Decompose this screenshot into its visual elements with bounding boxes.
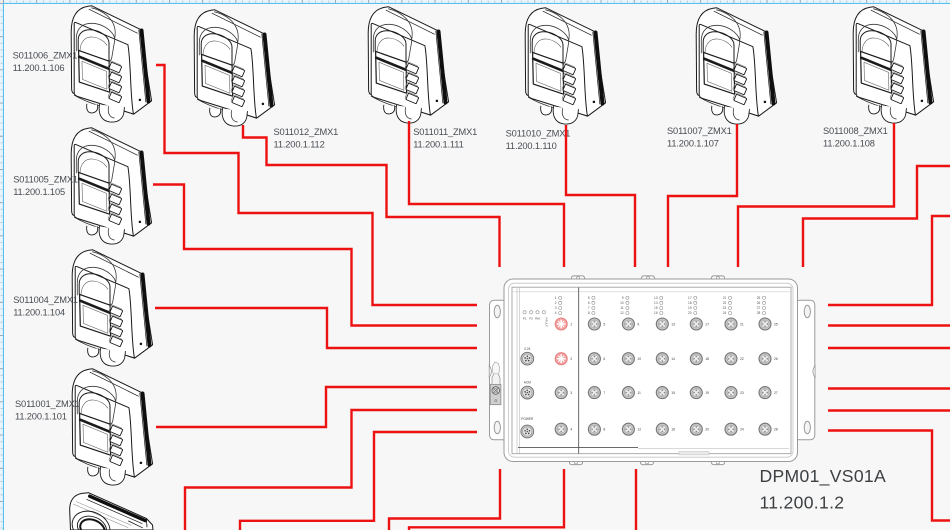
svg-text:13: 13 [654, 296, 658, 300]
svg-text:11.200.1.108: 11.200.1.108 [823, 138, 875, 148]
svg-text:RM: RM [535, 316, 540, 320]
svg-text:POWER: POWER [521, 417, 534, 421]
svg-text:11.200.1.107: 11.200.1.107 [667, 138, 719, 148]
svg-text:P1: P1 [523, 316, 527, 320]
svg-text:14: 14 [671, 357, 675, 361]
svg-text:16: 16 [654, 311, 658, 315]
svg-text:24: 24 [740, 428, 744, 432]
svg-text:4: 4 [555, 311, 557, 315]
svg-text:21: 21 [740, 322, 744, 326]
svg-text:9: 9 [622, 296, 624, 300]
svg-text:1: 1 [555, 296, 557, 300]
svg-text:22: 22 [740, 357, 744, 361]
svg-text:15: 15 [671, 391, 675, 395]
svg-text:24: 24 [723, 311, 727, 315]
svg-text:9: 9 [637, 322, 639, 326]
svg-text:19: 19 [705, 391, 709, 395]
svg-text:20: 20 [705, 428, 709, 432]
svg-text:S011010_ZMX1: S011010_ZMX1 [506, 129, 571, 139]
svg-text:11.200.1.110: 11.200.1.110 [506, 141, 557, 151]
svg-text:11.200.1.101: 11.200.1.101 [15, 411, 67, 421]
svg-text:25: 25 [757, 296, 761, 300]
svg-text:18: 18 [688, 301, 692, 305]
svg-text:7: 7 [588, 306, 590, 310]
svg-text:S011012_ZMX1: S011012_ZMX1 [274, 127, 339, 137]
svg-text:1: 1 [570, 322, 572, 326]
svg-text:10: 10 [620, 301, 624, 305]
svg-text:P2: P2 [529, 316, 533, 320]
svg-text:11.200.1.2: 11.200.1.2 [760, 493, 845, 513]
svg-text:11: 11 [637, 391, 641, 395]
svg-text:20: 20 [688, 311, 692, 315]
svg-text:S011001_ZMX1: S011001_ZMX1 [15, 399, 80, 409]
svg-text:19: 19 [688, 306, 692, 310]
svg-text:8: 8 [603, 428, 605, 432]
svg-text:25: 25 [774, 322, 778, 326]
svg-text:S011006_ZMX1: S011006_ZMX1 [13, 50, 78, 60]
svg-text:17: 17 [705, 322, 709, 326]
svg-text:4: 4 [570, 428, 572, 432]
svg-text:3: 3 [555, 306, 557, 310]
svg-text:0.24: 0.24 [524, 347, 530, 351]
svg-text:11: 11 [620, 306, 624, 310]
svg-text:10: 10 [637, 357, 641, 361]
svg-text:15: 15 [654, 306, 658, 310]
svg-text:8: 8 [588, 311, 590, 315]
svg-text:FAULT: FAULT [544, 318, 548, 328]
svg-text:5: 5 [588, 296, 590, 300]
svg-text:12: 12 [620, 311, 624, 315]
svg-text:S011007_ZMX1: S011007_ZMX1 [667, 126, 732, 136]
svg-text:16: 16 [671, 428, 675, 432]
svg-text:ACM: ACM [524, 381, 531, 385]
svg-text:S011004_ZMX1: S011004_ZMX1 [13, 295, 78, 305]
svg-text:11.200.1.112: 11.200.1.112 [274, 139, 325, 149]
svg-text:26: 26 [774, 357, 778, 361]
svg-text:2: 2 [570, 357, 572, 361]
svg-text:DPM01_VS01A: DPM01_VS01A [760, 466, 887, 487]
svg-text:11.200.1.104: 11.200.1.104 [13, 307, 65, 317]
svg-text:6: 6 [603, 357, 605, 361]
svg-text:27: 27 [757, 306, 761, 310]
svg-text:18: 18 [705, 357, 709, 361]
svg-text:11.200.1.105: 11.200.1.105 [13, 187, 65, 197]
svg-text:14: 14 [654, 301, 658, 305]
svg-text:21: 21 [723, 296, 727, 300]
svg-text:13: 13 [671, 322, 675, 326]
svg-text:28: 28 [774, 428, 778, 432]
svg-text:S011005_ZMX1: S011005_ZMX1 [13, 174, 78, 184]
svg-text:11.200.1.106: 11.200.1.106 [13, 63, 65, 73]
svg-text:S011008_ZMX1: S011008_ZMX1 [823, 126, 888, 136]
svg-text:28: 28 [757, 311, 761, 315]
svg-text:11.200.1.111: 11.200.1.111 [413, 140, 463, 150]
svg-text:27: 27 [774, 391, 778, 395]
svg-text:3: 3 [570, 391, 572, 395]
svg-text:26: 26 [757, 301, 761, 305]
svg-text:5: 5 [603, 322, 605, 326]
svg-text:S011011_ZMX1: S011011_ZMX1 [413, 127, 477, 137]
svg-text:22: 22 [723, 301, 727, 305]
svg-text:2: 2 [555, 301, 557, 305]
svg-text:12: 12 [637, 428, 641, 432]
svg-text:6: 6 [588, 301, 590, 305]
svg-text:17: 17 [688, 296, 692, 300]
svg-text:7: 7 [603, 391, 605, 395]
svg-text:23: 23 [740, 391, 744, 395]
svg-text:23: 23 [723, 306, 727, 310]
